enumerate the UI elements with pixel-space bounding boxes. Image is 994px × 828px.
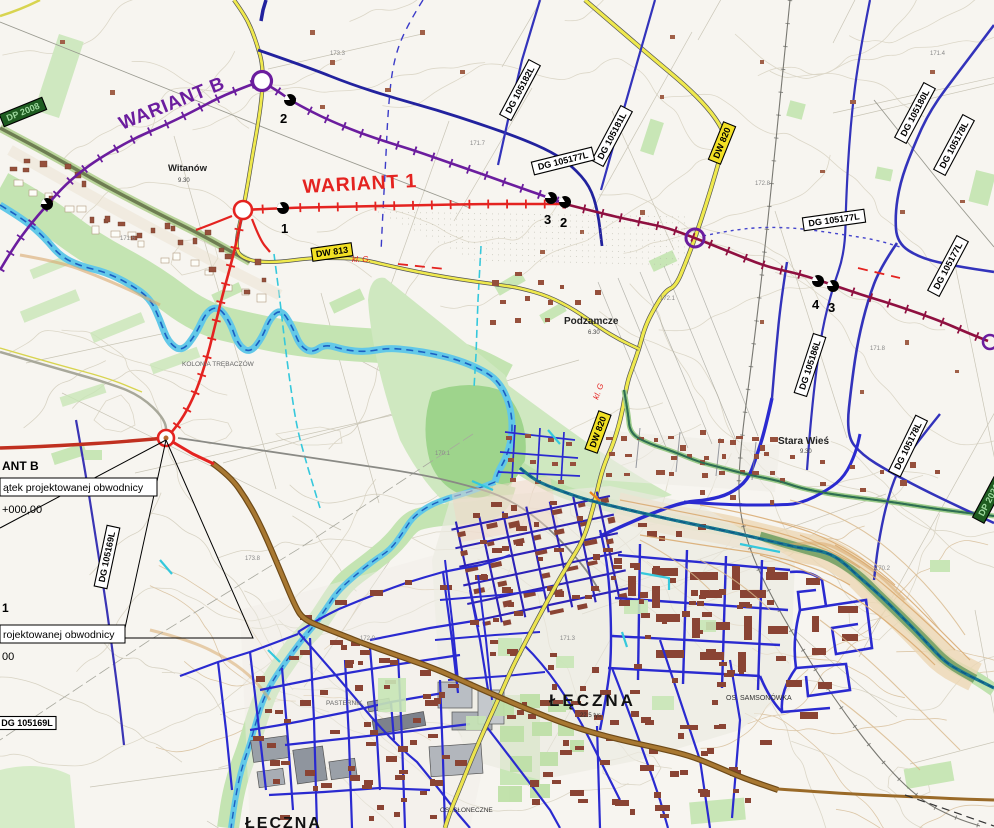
svg-text:+000,00: +000,00	[2, 504, 42, 516]
svg-text:172.0: 172.0	[360, 636, 376, 642]
svg-text:00: 00	[2, 651, 14, 663]
svg-text:ŁĘCZNA: ŁĘCZNA	[245, 815, 322, 828]
svg-text:Witanów: Witanów	[168, 163, 208, 174]
svg-text:3: 3	[828, 300, 835, 315]
svg-text:1: 1	[2, 601, 9, 615]
svg-text:3: 3	[544, 212, 551, 227]
svg-text:22.5 tys.: 22.5 tys.	[580, 713, 603, 719]
svg-text:PASTERNIK: PASTERNIK	[326, 700, 363, 707]
svg-text:171.3: 171.3	[560, 636, 576, 642]
svg-text:9.30: 9.30	[178, 178, 190, 184]
svg-text:Podzamcze: Podzamcze	[564, 316, 619, 327]
svg-text:ANT B: ANT B	[2, 459, 39, 473]
svg-text:6.30: 6.30	[588, 330, 600, 336]
svg-text:DG 105169L: DG 105169L	[1, 718, 53, 728]
svg-text:170.1: 170.1	[435, 451, 451, 457]
svg-text:ątek projektowanej obwodnicy: ątek projektowanej obwodnicy	[3, 482, 144, 494]
svg-text:1: 1	[281, 221, 288, 236]
svg-text:4: 4	[812, 297, 820, 312]
svg-text:172.1: 172.1	[660, 296, 676, 302]
svg-text:2: 2	[560, 215, 567, 230]
svg-text:rojektowanej obwodnicy: rojektowanej obwodnicy	[3, 629, 115, 641]
svg-text:173.3: 173.3	[330, 51, 346, 57]
svg-text:172.8: 172.8	[755, 181, 771, 187]
svg-text:9.30: 9.30	[800, 449, 812, 455]
svg-text:Stara Wieś: Stara Wieś	[778, 436, 829, 447]
svg-text:kl. G.: kl. G.	[352, 255, 371, 264]
svg-text:OS. SAMSONÓWKA: OS. SAMSONÓWKA	[726, 693, 792, 702]
svg-text:ŁĘCZNA: ŁĘCZNA	[549, 691, 636, 710]
svg-text:KOLONIA TRĘBACZÓW: KOLONIA TRĘBACZÓW	[182, 359, 255, 368]
svg-text:171.7: 171.7	[470, 141, 486, 147]
svg-text:2: 2	[280, 111, 287, 126]
svg-text:170.2: 170.2	[875, 566, 891, 572]
svg-text:173.8: 173.8	[245, 556, 261, 562]
svg-text:171.8: 171.8	[870, 346, 886, 352]
svg-text:171.4: 171.4	[930, 51, 946, 57]
svg-text:OS. SŁONECZNE: OS. SŁONECZNE	[440, 807, 493, 814]
svg-text:171.6: 171.6	[120, 236, 136, 242]
